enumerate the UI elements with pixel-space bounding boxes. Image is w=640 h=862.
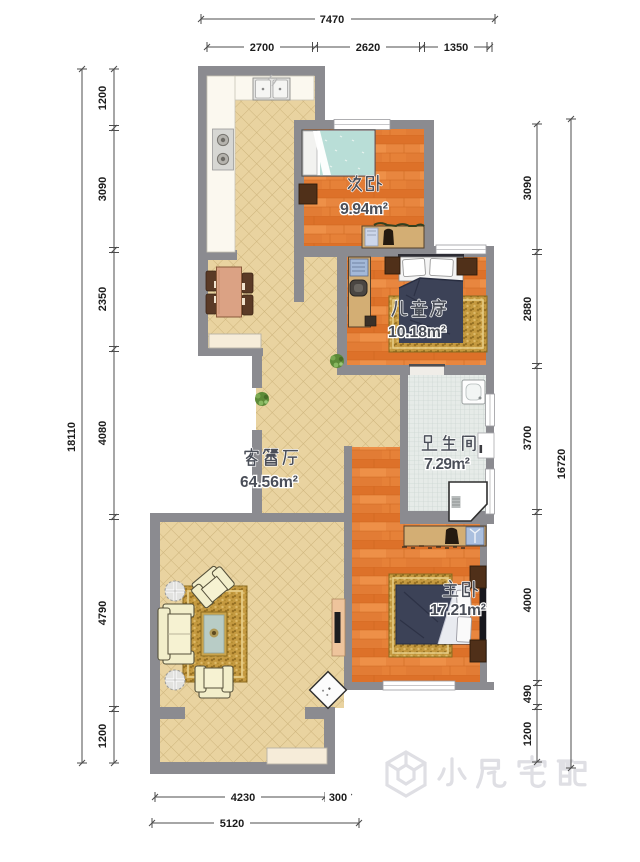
svg-text:17.21m²: 17.21m²: [430, 602, 486, 619]
svg-text:7470: 7470: [320, 14, 344, 26]
svg-text:64.56m²: 64.56m²: [240, 474, 298, 491]
svg-text:4000: 4000: [522, 588, 534, 612]
svg-text:2880: 2880: [522, 297, 534, 321]
svg-text:16720: 16720: [556, 449, 568, 480]
svg-text:1200: 1200: [97, 86, 109, 110]
svg-text:4080: 4080: [97, 421, 109, 445]
svg-text:1200: 1200: [97, 724, 109, 748]
svg-text:7.29m²: 7.29m²: [424, 456, 470, 473]
svg-text:3090: 3090: [97, 177, 109, 201]
svg-text:4790: 4790: [97, 601, 109, 625]
svg-text:2350: 2350: [97, 287, 109, 311]
svg-text:1350: 1350: [444, 42, 468, 54]
svg-text:9.94m²: 9.94m²: [340, 201, 388, 218]
svg-text:3090: 3090: [522, 176, 534, 200]
svg-text:300: 300: [329, 792, 347, 804]
svg-text:2620: 2620: [356, 42, 380, 54]
svg-text:4230: 4230: [231, 792, 255, 804]
svg-text:3700: 3700: [522, 426, 534, 450]
svg-text:1200: 1200: [522, 722, 534, 746]
svg-text:490: 490: [522, 685, 534, 703]
svg-text:5120: 5120: [220, 818, 244, 830]
svg-text:10.18m²: 10.18m²: [388, 324, 446, 341]
svg-text:18110: 18110: [66, 422, 78, 452]
svg-text:2700: 2700: [250, 42, 274, 54]
